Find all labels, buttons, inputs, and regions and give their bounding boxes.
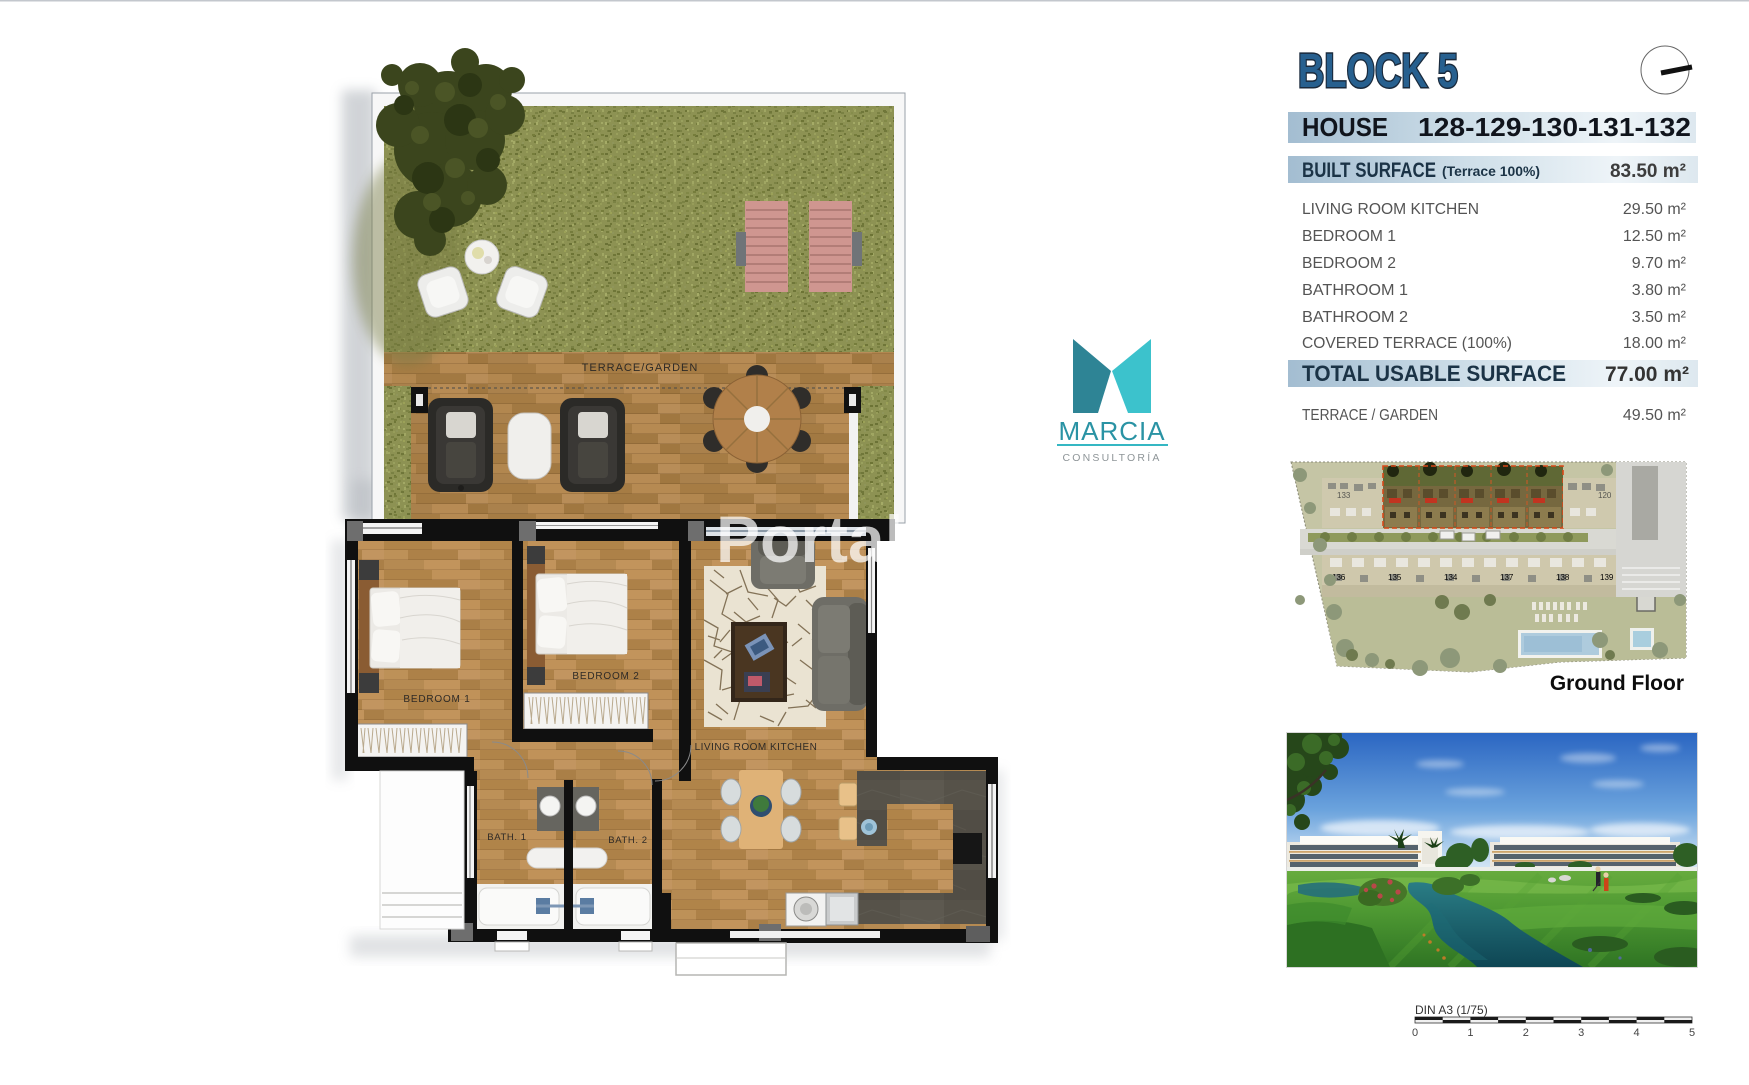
svg-text:BEDROOM 2: BEDROOM 2 bbox=[1302, 255, 1396, 272]
svg-text:29.50 m²: 29.50 m² bbox=[1623, 201, 1687, 218]
svg-text:139: 139 bbox=[1600, 573, 1614, 582]
svg-text:HOUSE: HOUSE bbox=[1302, 112, 1388, 142]
svg-text:BEDROOM 2: BEDROOM 2 bbox=[572, 671, 639, 682]
svg-text:3.80 m²: 3.80 m² bbox=[1632, 282, 1687, 299]
svg-text:3.50 m²: 3.50 m² bbox=[1632, 309, 1687, 326]
svg-text:CONSULTORÍA: CONSULTORÍA bbox=[1062, 451, 1161, 464]
svg-text:4: 4 bbox=[1634, 1027, 1640, 1039]
svg-text:134: 134 bbox=[1444, 573, 1458, 582]
svg-text:0: 0 bbox=[1412, 1027, 1418, 1039]
svg-text:(Terrace 100%): (Terrace 100%) bbox=[1442, 163, 1540, 179]
svg-text:9.70 m²: 9.70 m² bbox=[1632, 255, 1687, 272]
svg-text:83.50 m²: 83.50 m² bbox=[1610, 161, 1686, 182]
svg-text:5: 5 bbox=[1689, 1027, 1695, 1039]
svg-text:Ground Floor: Ground Floor bbox=[1550, 672, 1684, 695]
svg-text:1: 1 bbox=[1467, 1027, 1473, 1039]
svg-text:BLOCK 5: BLOCK 5 bbox=[1298, 45, 1458, 98]
svg-text:LIVING ROOM KITCHEN: LIVING ROOM KITCHEN bbox=[695, 742, 818, 753]
svg-text:BATH. 2: BATH. 2 bbox=[608, 835, 647, 846]
svg-text:128-129-130-131-132: 128-129-130-131-132 bbox=[1418, 112, 1691, 142]
svg-text:138: 138 bbox=[1556, 573, 1570, 582]
svg-text:12.50 m²: 12.50 m² bbox=[1623, 228, 1687, 245]
svg-text:49.50 m²: 49.50 m² bbox=[1623, 407, 1687, 424]
svg-text:BATHROOM 2: BATHROOM 2 bbox=[1302, 309, 1408, 326]
svg-text:18.00 m²: 18.00 m² bbox=[1623, 335, 1687, 352]
svg-text:2: 2 bbox=[1523, 1027, 1529, 1039]
svg-text:COVERED TERRACE (100%): COVERED TERRACE (100%) bbox=[1302, 335, 1512, 352]
svg-text:BEDROOM 1: BEDROOM 1 bbox=[403, 694, 470, 705]
svg-text:BUILT SURFACE: BUILT SURFACE bbox=[1302, 159, 1436, 182]
svg-text:TERRACE / GARDEN: TERRACE / GARDEN bbox=[1302, 407, 1438, 424]
svg-text:BEDROOM 1: BEDROOM 1 bbox=[1302, 228, 1396, 245]
svg-text:MARCIA: MARCIA bbox=[1058, 416, 1165, 446]
svg-text:3: 3 bbox=[1578, 1027, 1584, 1039]
svg-text:BATH. 1: BATH. 1 bbox=[487, 832, 526, 843]
svg-text:TERRACE/GARDEN: TERRACE/GARDEN bbox=[582, 362, 699, 374]
svg-text:137: 137 bbox=[1500, 573, 1514, 582]
svg-text:135: 135 bbox=[1388, 573, 1402, 582]
svg-text:120: 120 bbox=[1598, 491, 1612, 500]
svg-text:Portal: Portal bbox=[716, 502, 903, 576]
svg-text:BATHROOM 1: BATHROOM 1 bbox=[1302, 282, 1408, 299]
svg-text:TOTAL USABLE SURFACE: TOTAL USABLE SURFACE bbox=[1302, 361, 1566, 386]
svg-text:77.00 m²: 77.00 m² bbox=[1605, 363, 1689, 386]
svg-text:DIN A3 (1/75): DIN A3 (1/75) bbox=[1415, 1003, 1488, 1017]
svg-text:LIVING ROOM KITCHEN: LIVING ROOM KITCHEN bbox=[1302, 201, 1479, 218]
svg-text:133: 133 bbox=[1337, 491, 1351, 500]
